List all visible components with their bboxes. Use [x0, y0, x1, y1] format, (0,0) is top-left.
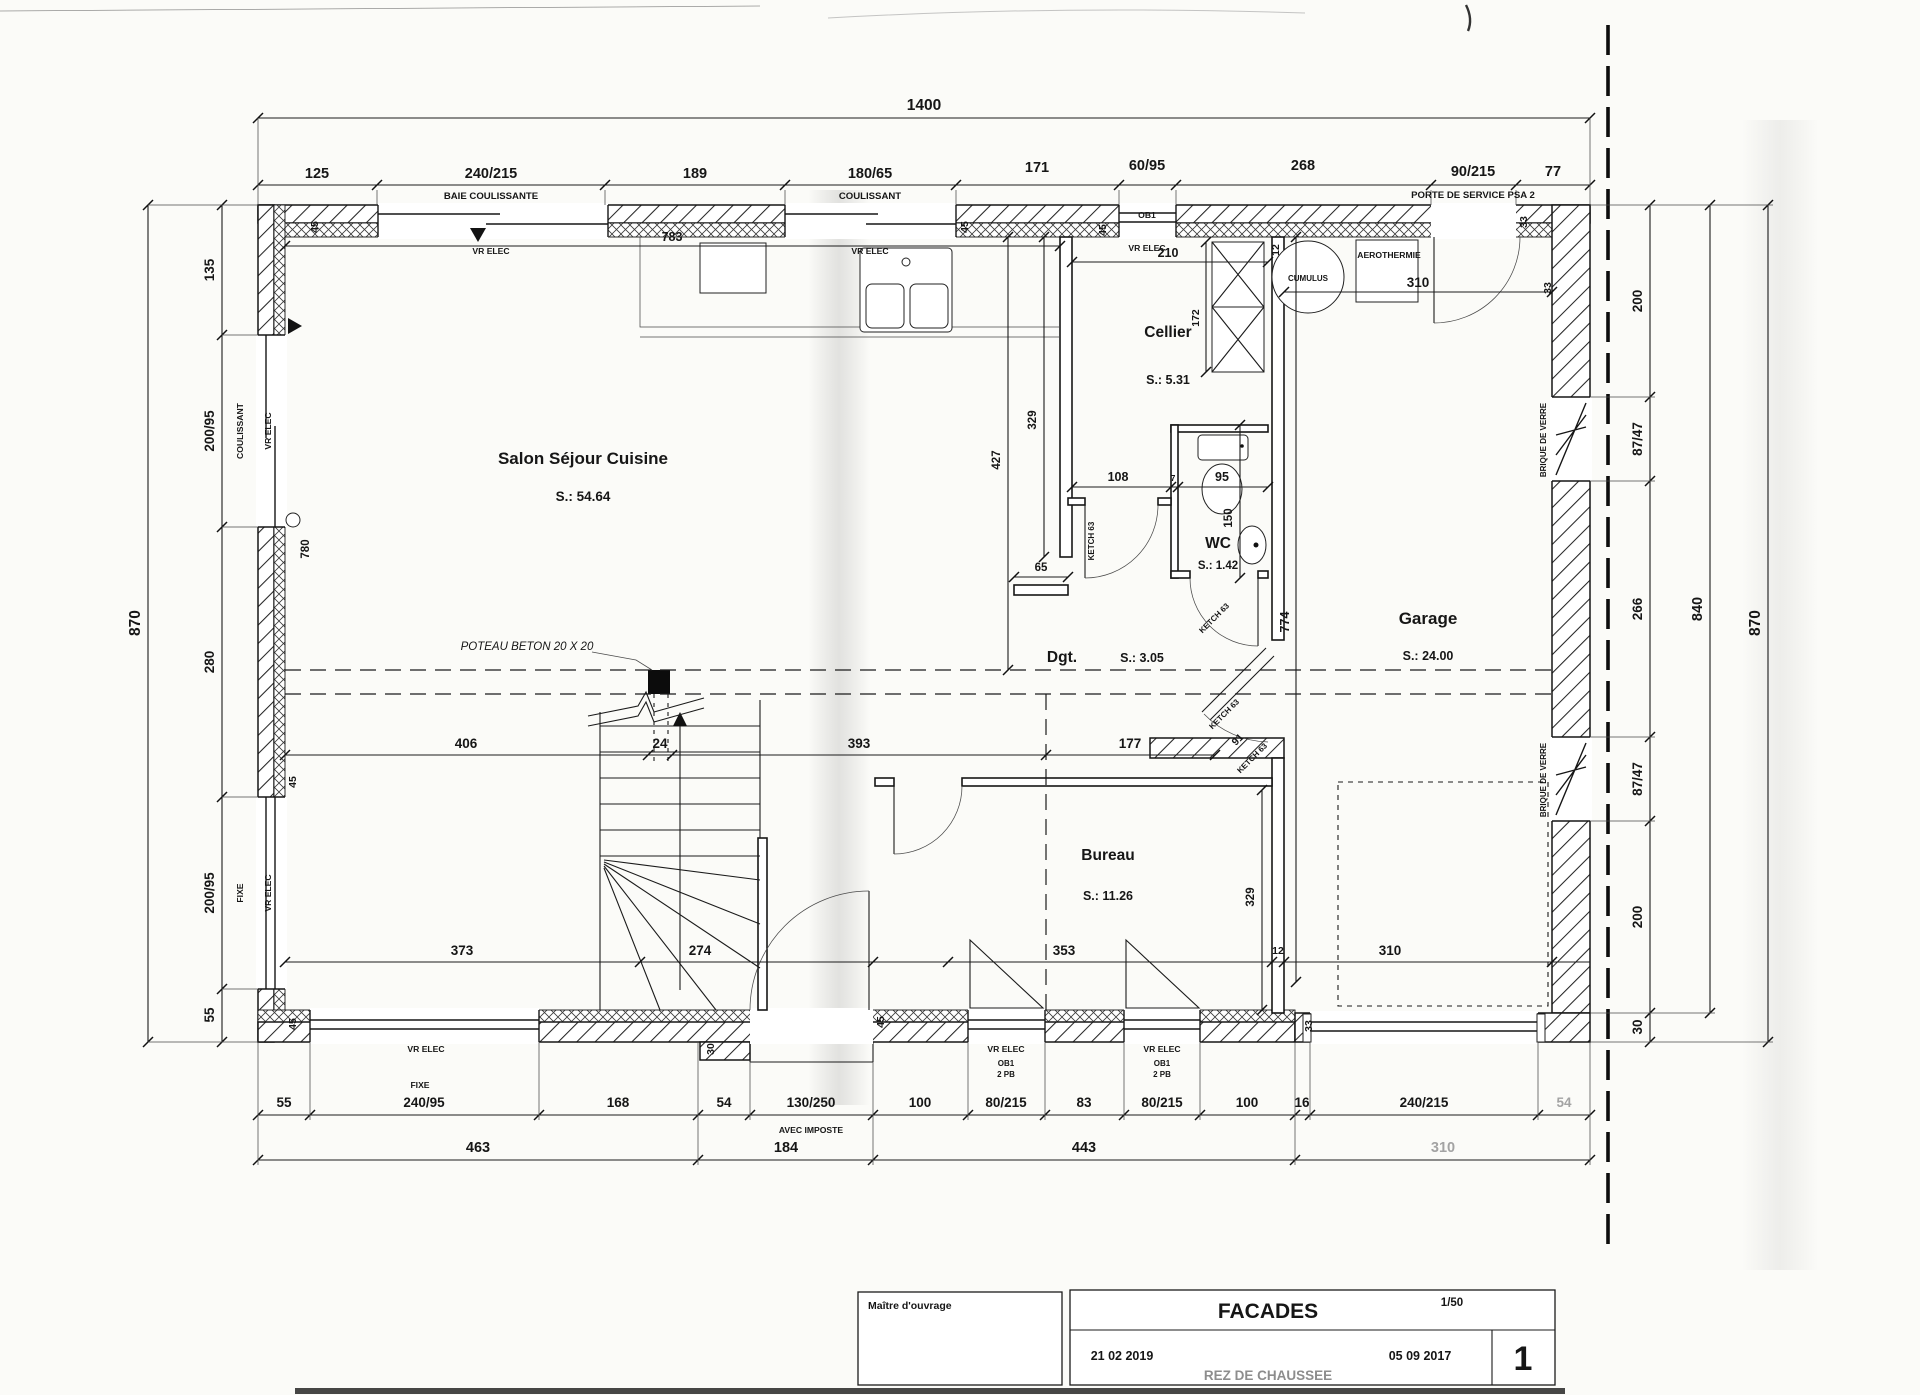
label-fixe-bottom: FIXE	[410, 1080, 429, 1090]
floor-plan-sheet: 1400 125 240/215 189 180/65 171 60/95 26…	[0, 0, 1920, 1395]
post-poteau-beton	[648, 670, 670, 694]
sink-basin-left	[866, 284, 904, 328]
dim-95: 95	[1215, 470, 1229, 484]
title-date-original: 05 09 2017	[1389, 1349, 1452, 1363]
dim-low-12: 12	[1272, 945, 1284, 957]
label-ob1-2pb-1b: 2 PB	[997, 1070, 1015, 1079]
label-cumulus: CUMULUS	[1288, 274, 1329, 283]
title-drawing-title: FACADES	[1218, 1300, 1318, 1323]
label-vr-elec-7: VR ELEC	[987, 1044, 1024, 1054]
label-brique-2: BRIQUE DE VERRE	[1539, 742, 1548, 817]
dim-bot-16: 16	[1294, 1095, 1310, 1110]
dim-bot-55: 55	[276, 1095, 292, 1110]
dim-780-interior: 780	[300, 539, 312, 558]
dim-low-373: 373	[451, 943, 474, 958]
label-ob1-2pb-2b: 2 PB	[1153, 1070, 1171, 1079]
label-vr-elec-8: VR ELEC	[1143, 1044, 1180, 1054]
label-ob1-2pb-1a: OB1	[998, 1059, 1015, 1068]
dim-7: 7	[1171, 473, 1176, 483]
room-wc-area: S.: 1.42	[1198, 560, 1238, 572]
dim-bot-80-215b: 80/215	[1141, 1095, 1183, 1110]
label-vr-elec-4: VR ELEC	[263, 412, 273, 449]
dim-total-310: 310	[1431, 1140, 1455, 1156]
dim-wall-12-top: 12	[1270, 244, 1282, 256]
label-fixe-left: FIXE	[235, 883, 245, 902]
wc-basin	[1238, 526, 1266, 564]
wall-stub-65	[1014, 585, 1068, 595]
dim-bot-54b: 54	[1556, 1095, 1572, 1110]
label-ob1-top: OB1	[1138, 210, 1156, 220]
sink-faucet	[902, 258, 910, 266]
wall-bureau-garage	[1272, 758, 1284, 1013]
room-bureau-area: S.: 11.26	[1083, 889, 1133, 903]
dim-total-184: 184	[774, 1140, 798, 1156]
wall-cellier-bottom-b	[1158, 498, 1171, 505]
dim-bot-100b: 100	[1236, 1095, 1259, 1110]
wall-wc-bottom-a	[1171, 571, 1190, 578]
dim-45-b: 45	[959, 221, 971, 233]
label-brique-1: BRIQUE DE VERRE	[1539, 402, 1548, 477]
dim-top-268: 268	[1291, 158, 1315, 174]
dim-45-d: 45	[287, 776, 299, 788]
dim-mid-393: 393	[848, 736, 871, 751]
dim-172: 172	[1190, 309, 1202, 327]
dim-bot-240-95: 240/95	[403, 1095, 445, 1110]
label-vr-elec-6: VR ELEC	[407, 1044, 444, 1054]
dim-top-240-215: 240/215	[465, 166, 517, 182]
dim-top-77: 77	[1545, 164, 1561, 180]
title-scale: 1/50	[1441, 1297, 1463, 1309]
title-block: Maître d'ouvrage 21 02 2019 FACADES 1/50…	[858, 1290, 1555, 1385]
dim-30-step: 30	[705, 1043, 717, 1055]
title-floor-name: REZ DE CHAUSSEE	[1204, 1368, 1332, 1383]
dim-bot-80-215a: 80/215	[985, 1095, 1027, 1110]
room-wc-name: WC	[1205, 535, 1231, 552]
dim-right-200b: 200	[1630, 906, 1645, 929]
kitchen-appliance	[700, 243, 766, 293]
dim-bot-168: 168	[607, 1095, 630, 1110]
dim-45-f: 45	[875, 1016, 887, 1028]
label-poteau-beton: POTEAU BETON 20 X 20	[461, 641, 594, 653]
dim-top-90-215: 90/215	[1451, 164, 1495, 180]
dim-45-e: 45	[287, 1018, 299, 1030]
room-bureau-name: Bureau	[1081, 847, 1134, 864]
dim-top-60-95: 60/95	[1129, 158, 1165, 174]
dim-left-55: 55	[202, 1007, 217, 1023]
dim-left-280: 280	[202, 651, 217, 674]
title-sheet-number: 1	[1514, 1340, 1533, 1378]
dim-salon-783: 783	[662, 230, 683, 244]
dim-top-189: 189	[683, 166, 707, 182]
dim-top-171: 171	[1025, 160, 1049, 176]
dim-left-200-95a: 200/95	[202, 410, 217, 452]
room-cellier-name: Cellier	[1144, 324, 1191, 341]
label-baie-coulissante: BAIE COULISSANTE	[444, 191, 539, 202]
label-porte-service: PORTE DE SERVICE PSA 2	[1411, 190, 1535, 201]
label-aerothermie: AEROTHERMIE	[1357, 250, 1421, 260]
label-ob1-2pb-2a: OB1	[1154, 1059, 1171, 1068]
wall-wc-top	[1171, 425, 1268, 432]
label-vr-elec-1: VR ELEC	[472, 246, 509, 256]
dim-45-a: 45	[309, 221, 321, 233]
dim-top-180-65: 180/65	[848, 166, 892, 182]
dim-left-135: 135	[202, 258, 217, 281]
dim-garage-310: 310	[1407, 275, 1430, 290]
dim-right-200a: 200	[1630, 290, 1645, 313]
dim-65: 65	[1035, 562, 1048, 574]
dim-bot-100a: 100	[909, 1095, 932, 1110]
electrical-symbol	[286, 513, 300, 527]
dim-right-87-47a: 87/47	[1630, 422, 1645, 456]
dim-bot-240-215: 240/215	[1400, 1095, 1449, 1110]
room-salon-area: S.: 54.64	[556, 489, 611, 504]
label-coulissant-left: COULISSANT	[235, 402, 245, 459]
dim-total-443: 443	[1072, 1140, 1096, 1156]
dim-bot-83: 83	[1076, 1095, 1092, 1110]
dim-right-overall-870: 870	[1747, 610, 1764, 636]
wall-bureau-top-a	[875, 778, 894, 786]
dim-bot-54a: 54	[716, 1095, 732, 1110]
dim-left-overall: 870	[127, 610, 144, 636]
dim-low-274: 274	[689, 943, 712, 958]
label-vr-elec-5: VR ELEC	[263, 874, 273, 911]
dim-150: 150	[1223, 508, 1235, 527]
dim-mid-24: 24	[652, 736, 668, 751]
label-vr-elec-2: VR ELEC	[851, 246, 888, 256]
room-dgt-name: Dgt.	[1047, 649, 1077, 666]
label-coulissant-top: COULISSANT	[839, 191, 901, 202]
dim-right-87-47b: 87/47	[1630, 762, 1645, 796]
title-owner-label: Maître d'ouvrage	[868, 1300, 952, 1312]
label-avec-imposte: AVEC IMPOSTE	[779, 1125, 844, 1135]
wall-bureau-top-b	[962, 778, 1272, 786]
dim-329-bureau: 329	[1245, 887, 1257, 906]
page-bottom-edge	[295, 1388, 1565, 1394]
room-garage-name: Garage	[1399, 609, 1458, 628]
wall-wc-bottom-b	[1258, 571, 1268, 578]
dim-total-463: 463	[466, 1140, 490, 1156]
dim-top-125: 125	[305, 166, 329, 182]
room-garage-area: S.: 24.00	[1403, 649, 1454, 663]
room-cellier-area: S.: 5.31	[1146, 373, 1190, 387]
room-salon-name: Salon Séjour Cuisine	[498, 449, 668, 468]
dim-774: 774	[1278, 612, 1292, 633]
dim-low-353: 353	[1053, 943, 1076, 958]
dim-right-inner-840: 840	[1690, 597, 1706, 621]
dim-45-c: 45	[1097, 224, 1109, 236]
dim-bot-130-250: 130/250	[787, 1095, 836, 1110]
room-dgt-area: S.: 3.05	[1120, 651, 1164, 665]
label-vr-elec-3: VR ELEC	[1128, 243, 1165, 253]
dim-mid-177: 177	[1119, 736, 1142, 751]
dim-left-200-95b: 200/95	[202, 872, 217, 914]
dim-427: 427	[991, 450, 1003, 469]
dim-wall-33-a: 33	[1518, 216, 1530, 228]
dim-108: 108	[1108, 470, 1129, 484]
dim-top-overall: 1400	[907, 97, 941, 114]
dim-mid-406: 406	[455, 736, 478, 751]
dim-wall-33-c: 33	[1303, 1020, 1315, 1032]
sink-basin-right	[910, 284, 948, 328]
dim-low-310: 310	[1379, 943, 1402, 958]
title-date-revision: 21 02 2019	[1091, 1349, 1154, 1363]
dim-wall-33-b: 33	[1542, 282, 1554, 294]
dim-329-kitchen: 329	[1027, 410, 1039, 429]
wall-kitchen-cellier	[1060, 237, 1072, 557]
label-ketch-1: KETCH 63	[1087, 521, 1096, 560]
dim-right-266: 266	[1630, 597, 1645, 620]
dim-right-30: 30	[1630, 1019, 1645, 1034]
wall-cellier-bottom-a	[1068, 498, 1085, 505]
wall-wc-left	[1171, 425, 1178, 578]
